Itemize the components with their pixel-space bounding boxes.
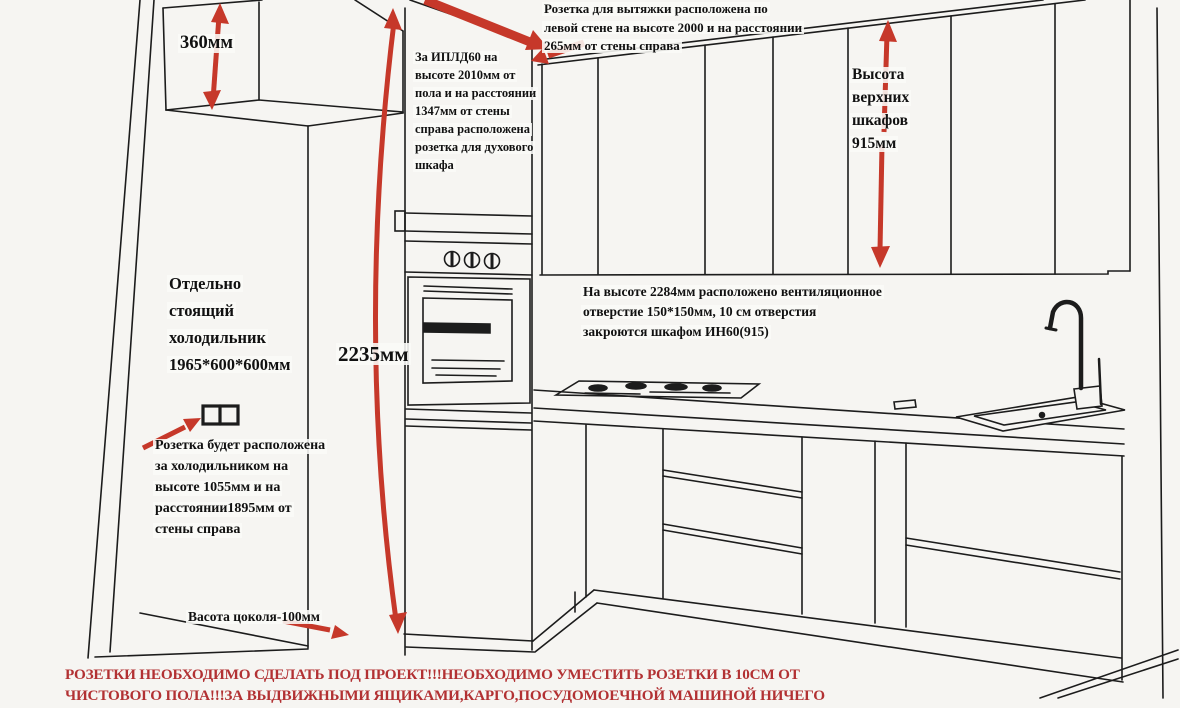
total-height-label: 2235мм <box>336 342 411 367</box>
drawer-unit <box>663 470 802 554</box>
vent-hole-note: На высоте 2284мм расположено вентиляцион… <box>581 284 884 344</box>
oven-socket-note-line: справа расположена <box>413 123 532 136</box>
oven-socket-note-line: 1347мм от стены <box>413 105 512 118</box>
oven-socket-note-line: розетка для духового <box>413 141 535 154</box>
upper-cabinet-height-note: Высота верхних шкафов 915мм <box>850 66 911 158</box>
oven-socket-note: За ИПЛД60 на высоте 2010мм от пола и на … <box>413 50 538 176</box>
warning-text: РОЗЕТКИ НЕОБХОДИМО СДЕЛАТЬ ПОД ПРОЕКТ!!!… <box>63 666 1178 708</box>
oven-socket-note-line: шкафа <box>413 159 456 172</box>
fridge-note-line: 1965*600*600мм <box>167 356 292 373</box>
upper-height-line: 915мм <box>850 136 898 152</box>
oven-knobs <box>445 252 500 269</box>
fridge-socket-note-line: расстоянии1895мм от <box>153 502 294 517</box>
vent-note-line: На высоте 2284мм расположено вентиляцион… <box>581 285 884 299</box>
fridge-note-line: холодильник <box>167 329 268 346</box>
oven-icon <box>408 277 530 405</box>
hood-socket-arrow <box>425 0 549 50</box>
wall-cabinet-left <box>163 0 403 126</box>
kitchen-drawing-page: Розетка для вытяжки расположена по левой… <box>0 0 1180 700</box>
right-wall <box>1040 8 1178 698</box>
fridge-socket-note-line: высоте 1055мм и на <box>153 481 282 496</box>
sink-drawers <box>906 538 1120 579</box>
fridge-note-line: стоящий <box>167 302 236 319</box>
plinth-height-value: Васота цоколя-100мм <box>186 610 322 624</box>
plinth-height-label: Васота цоколя-100мм <box>186 609 322 625</box>
fridge-socket-note-line: Розетка будет расположена <box>153 439 327 454</box>
vent-note-line: отверстие 150*150мм, 10 см отверстия <box>581 305 818 319</box>
hood-socket-note-line: 265мм от стены справа <box>542 39 682 53</box>
oven-socket-note-line: За ИПЛД60 на <box>413 51 499 64</box>
oven-socket-note-line: высоте 2010мм от <box>413 69 517 82</box>
hood-socket-note-line: левой стене на высоте 2000 и на расстоян… <box>542 21 804 35</box>
cooktop-icon <box>556 381 759 398</box>
fridge-socket-note-line: стены справа <box>153 523 242 538</box>
warning-line: ЧИСТОВОГО ПОЛА!!!ЗА ВЫДВИЖНЫМИ ЯЩИКАМИ,К… <box>63 688 827 704</box>
vent-note-line: закроются шкафом ИН60(915) <box>581 325 771 339</box>
upper-height-line: верхних <box>850 90 911 106</box>
fridge-socket-note: Розетка будет расположена за холодильник… <box>153 438 327 543</box>
fridge-note-line: Отдельно <box>167 275 243 292</box>
fridge-note: Отдельно стоящий холодильник 1965*600*60… <box>167 274 292 382</box>
base-cabinets <box>533 425 1123 682</box>
oven-socket-note-line: пола и на расстоянии <box>413 87 538 100</box>
warning-line: РОЗЕТКИ НЕОБХОДИМО СДЕЛАТЬ ПОД ПРОЕКТ!!!… <box>63 667 802 683</box>
fridge-socket-note-line: за холодильником на <box>153 460 290 475</box>
cabinet-depth-label: 360мм <box>178 33 235 54</box>
hood-socket-note: Розетка для вытяжки расположена по левой… <box>542 1 804 57</box>
upper-height-line: Высота <box>850 67 906 83</box>
dimension-arrow-360 <box>203 3 229 110</box>
total-height-value: 2235мм <box>336 343 411 365</box>
socket-symbol-icon <box>203 406 238 424</box>
cabinet-depth-value: 360мм <box>178 34 235 53</box>
hood-socket-note-line: Розетка для вытяжки расположена по <box>542 2 770 16</box>
faucet-icon <box>1046 302 1102 409</box>
upper-height-line: шкафов <box>850 113 910 129</box>
